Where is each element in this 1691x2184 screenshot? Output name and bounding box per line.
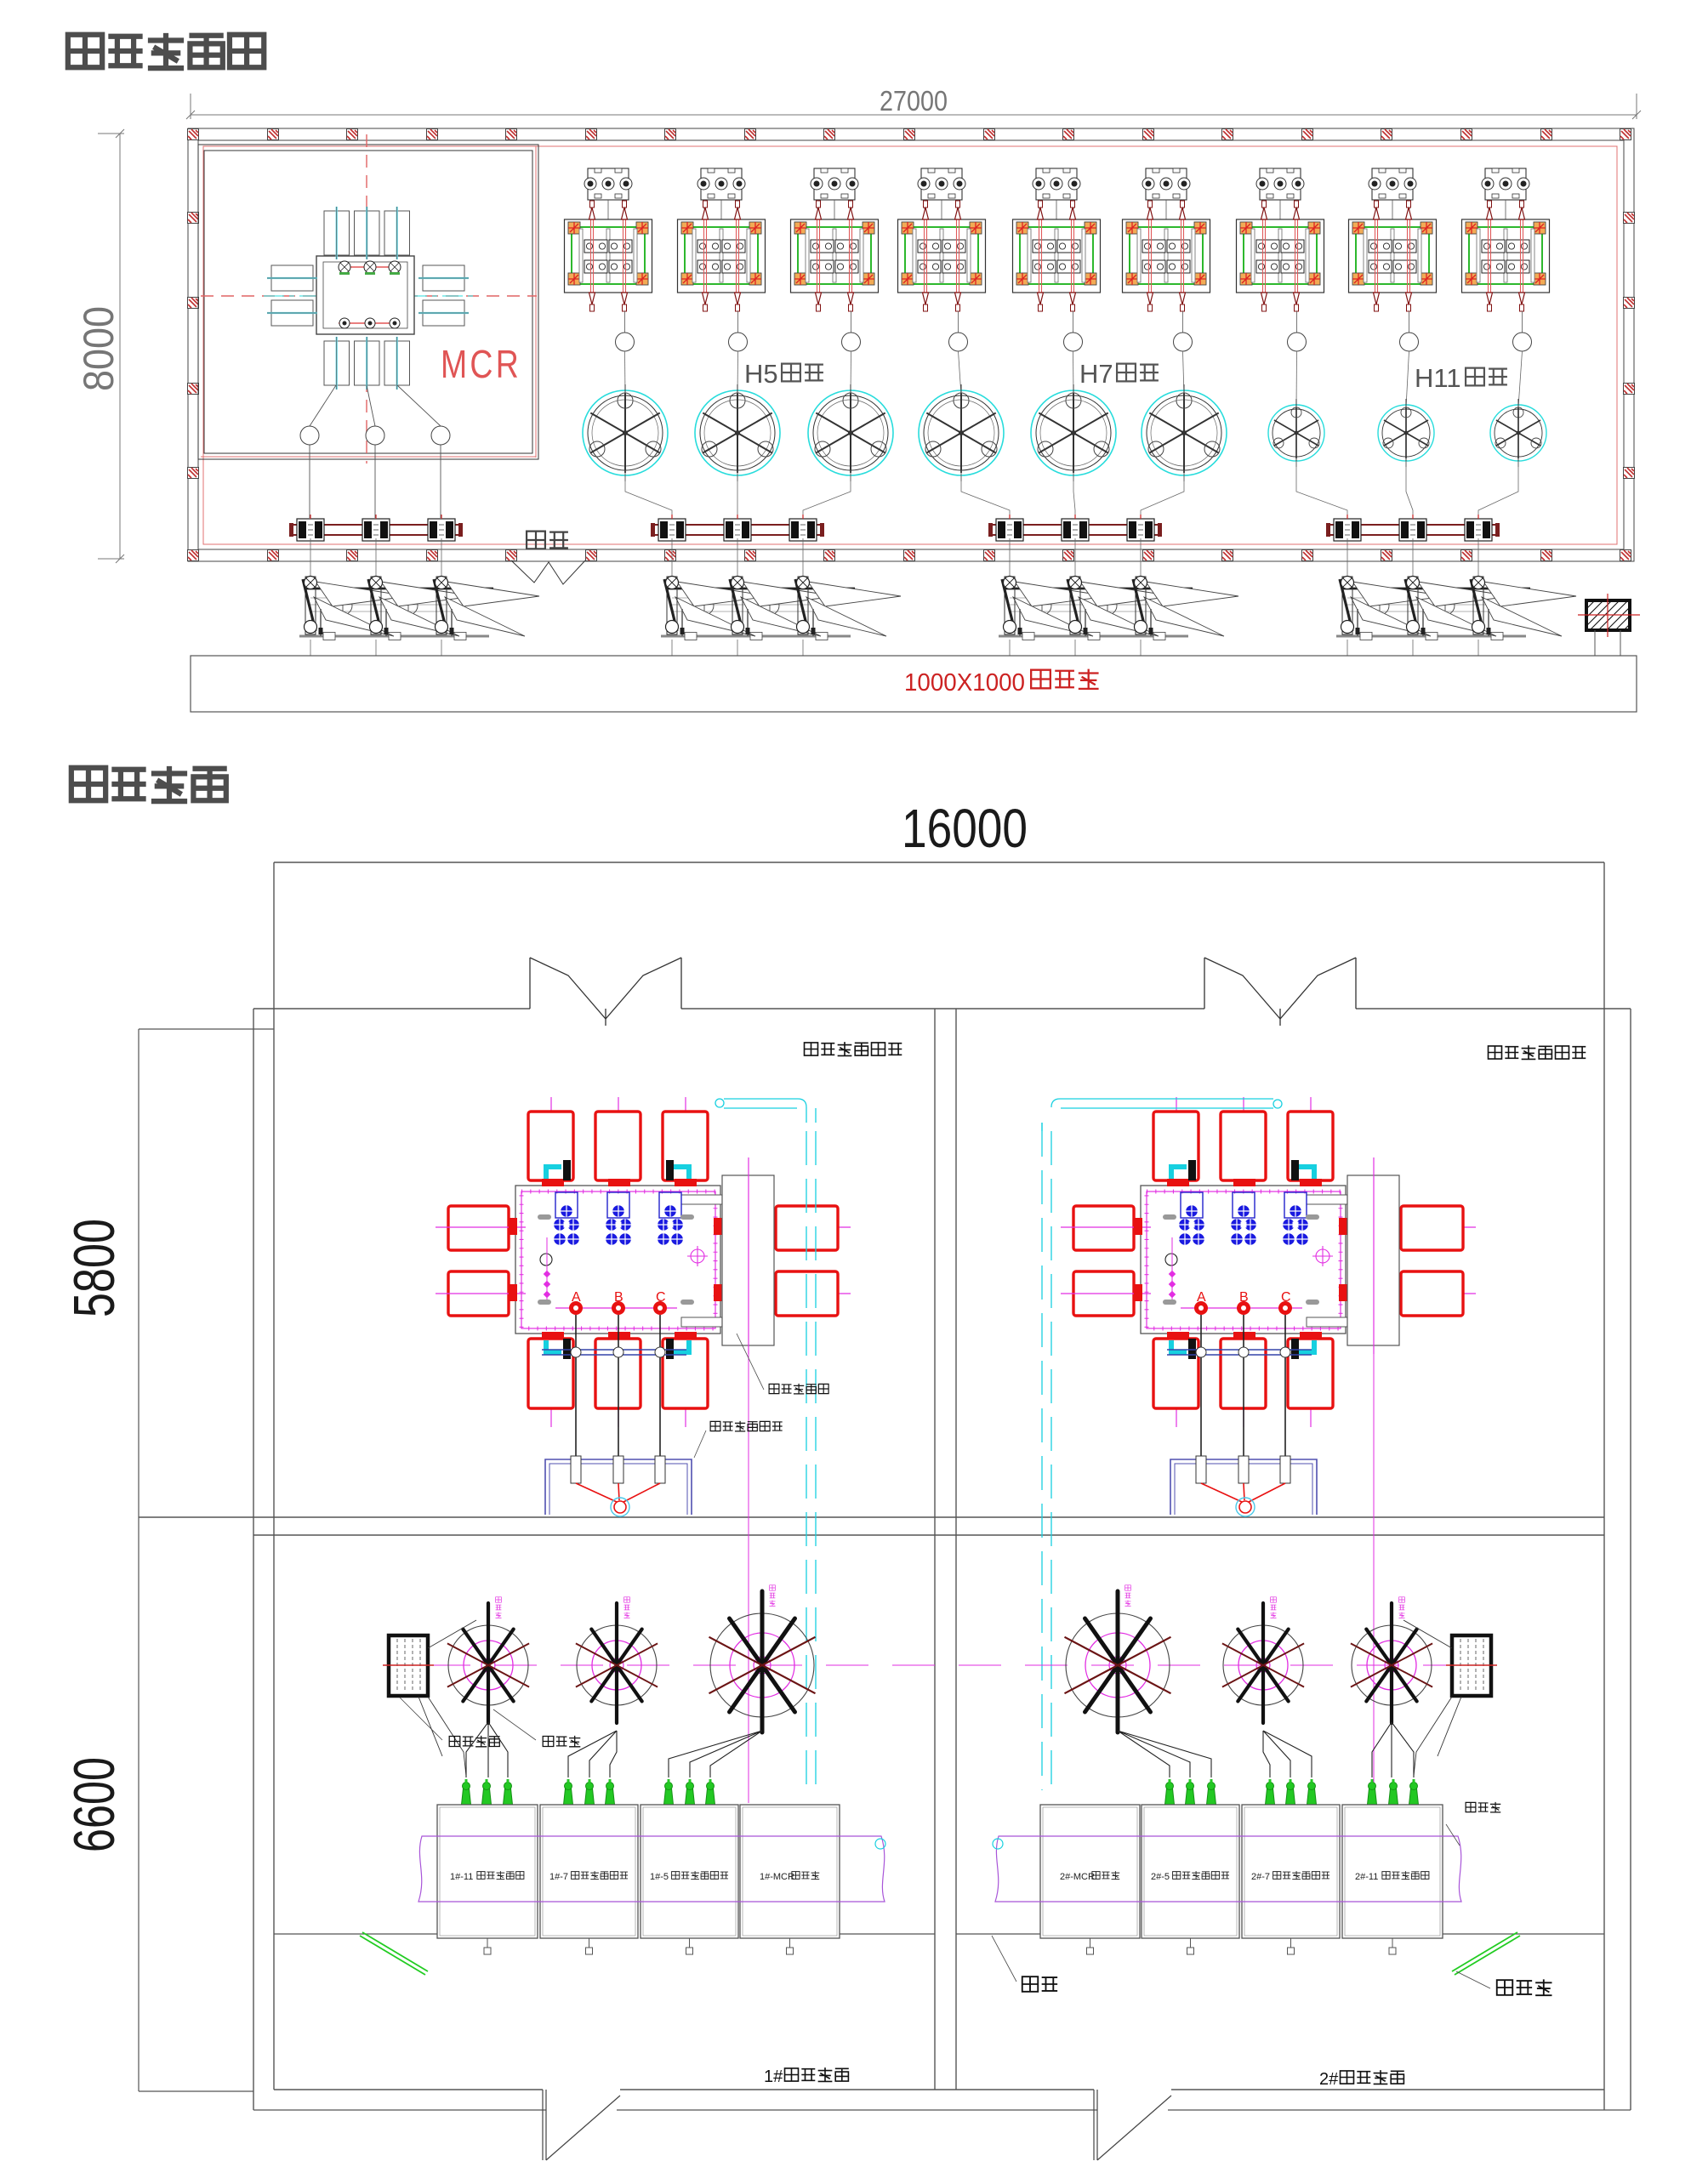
svg-text:MCR: MCR [441, 342, 521, 386]
svg-text:2#-MCR: 2#-MCR [1060, 1872, 1095, 1882]
svg-text:H11: H11 [1415, 363, 1461, 393]
svg-text:1000X1000: 1000X1000 [904, 669, 1025, 697]
svg-text:27000: 27000 [880, 85, 948, 117]
svg-text:1#-11: 1#-11 [450, 1872, 473, 1882]
svg-text:8000: 8000 [75, 306, 122, 391]
svg-text:1#: 1# [764, 2067, 783, 2086]
svg-text:H7: H7 [1079, 359, 1113, 389]
svg-text:1#-MCR: 1#-MCR [760, 1872, 794, 1882]
svg-text:6600: 6600 [62, 1757, 127, 1852]
svg-text:2#-7: 2#-7 [1251, 1872, 1270, 1882]
svg-text:2#: 2# [1319, 2070, 1339, 2089]
svg-text:1#-7: 1#-7 [549, 1872, 568, 1882]
svg-text:2#-11: 2#-11 [1355, 1872, 1378, 1882]
svg-text:5800: 5800 [62, 1219, 127, 1317]
svg-text:H5: H5 [744, 359, 778, 389]
svg-text:2#-5: 2#-5 [1151, 1872, 1170, 1882]
svg-text:16000: 16000 [902, 798, 1028, 859]
svg-text:1#-5: 1#-5 [650, 1872, 669, 1882]
